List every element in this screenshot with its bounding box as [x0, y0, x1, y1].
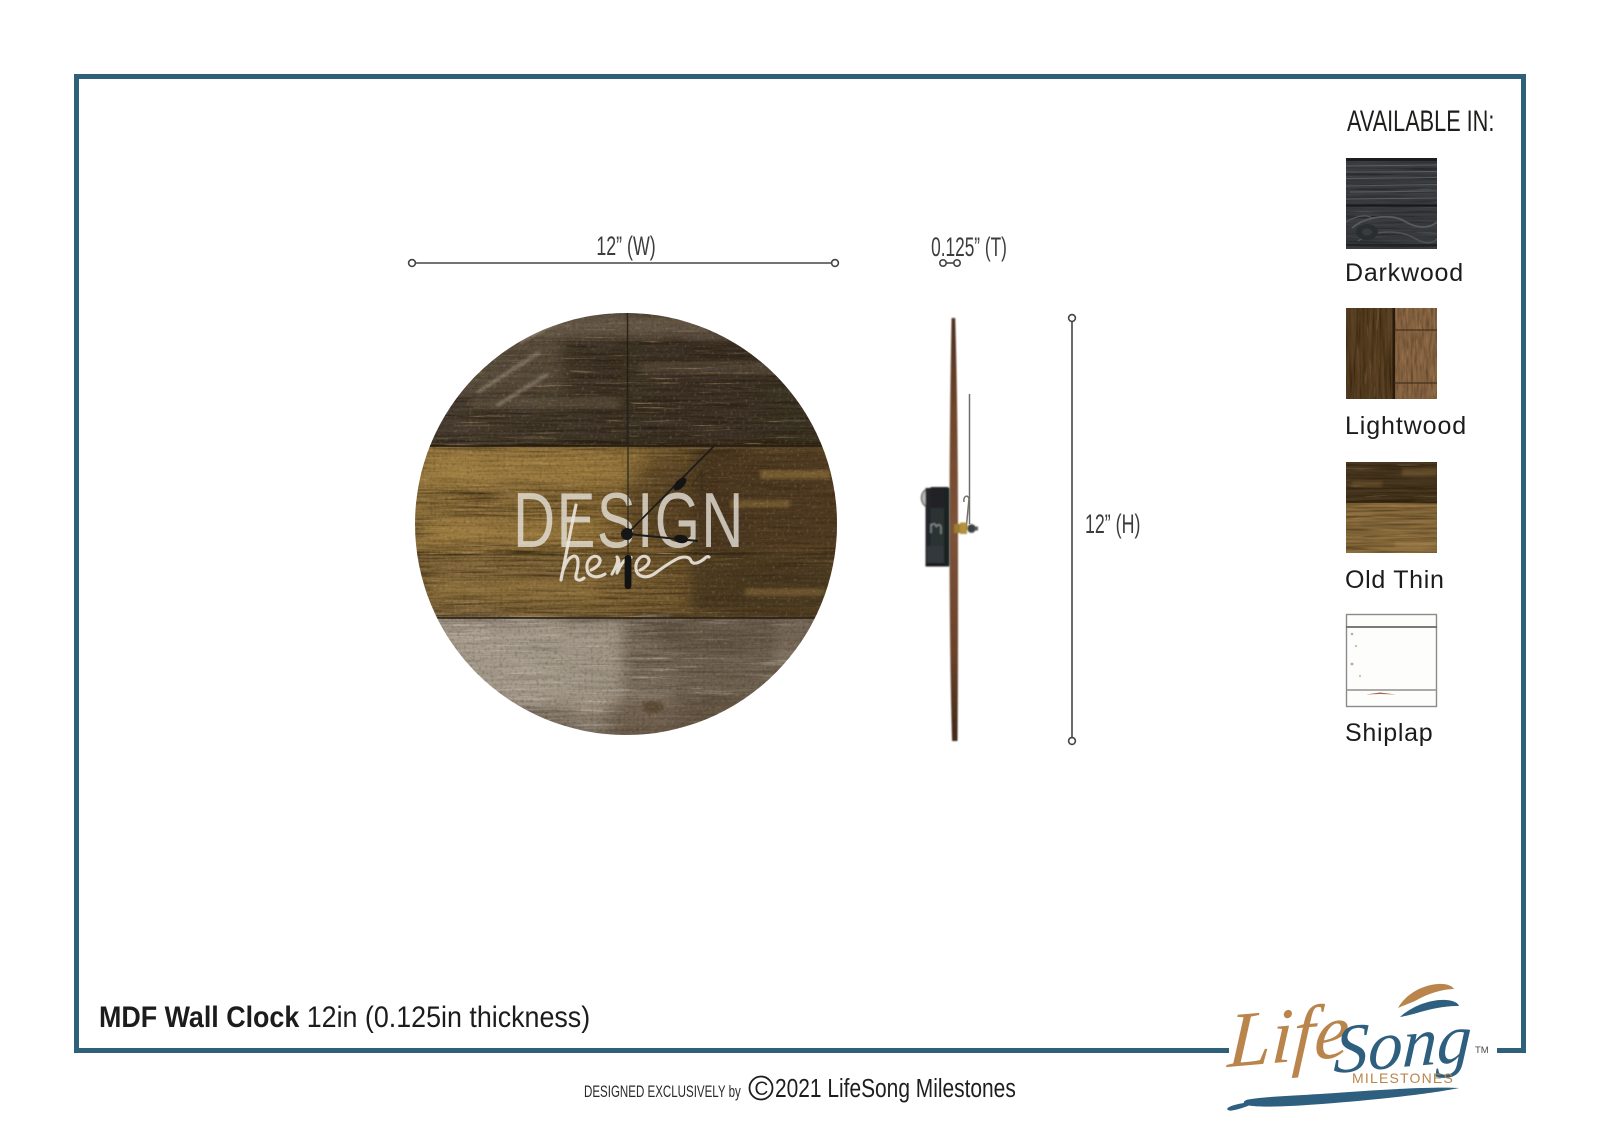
svg-text:4: 4	[691, 466, 707, 497]
svg-text:Lightwood: Lightwood	[1345, 412, 1467, 440]
svg-text:0.125” (T): 0.125” (T)	[931, 231, 1007, 262]
svg-text:DESIGNED EXCLUSIVELY by: DESIGNED EXCLUSIVELY by	[584, 1083, 741, 1102]
svg-text:C: C	[755, 1079, 769, 1100]
svg-text:Darkwood: Darkwood	[1345, 259, 1464, 287]
svg-text:Old Thin: Old Thin	[1345, 566, 1445, 594]
svg-text:DESIGN: DESIGN	[513, 477, 745, 564]
svg-text:MDF Wall Clock 12in (0.125in t: MDF Wall Clock 12in (0.125in thickness)	[99, 1001, 590, 1035]
svg-text:12” (W): 12” (W)	[596, 230, 655, 261]
svg-text:12” (H): 12” (H)	[1085, 508, 1140, 539]
svg-text:Shiplap: Shiplap	[1345, 719, 1433, 747]
svg-text:AVAILABLE IN:: AVAILABLE IN:	[1347, 103, 1494, 137]
svg-text:MILESTONES: MILESTONES	[1352, 1070, 1454, 1086]
svg-text:2021 LifeSong Milestones: 2021 LifeSong Milestones	[775, 1075, 1016, 1104]
svg-text:TM: TM	[1475, 1045, 1489, 1056]
